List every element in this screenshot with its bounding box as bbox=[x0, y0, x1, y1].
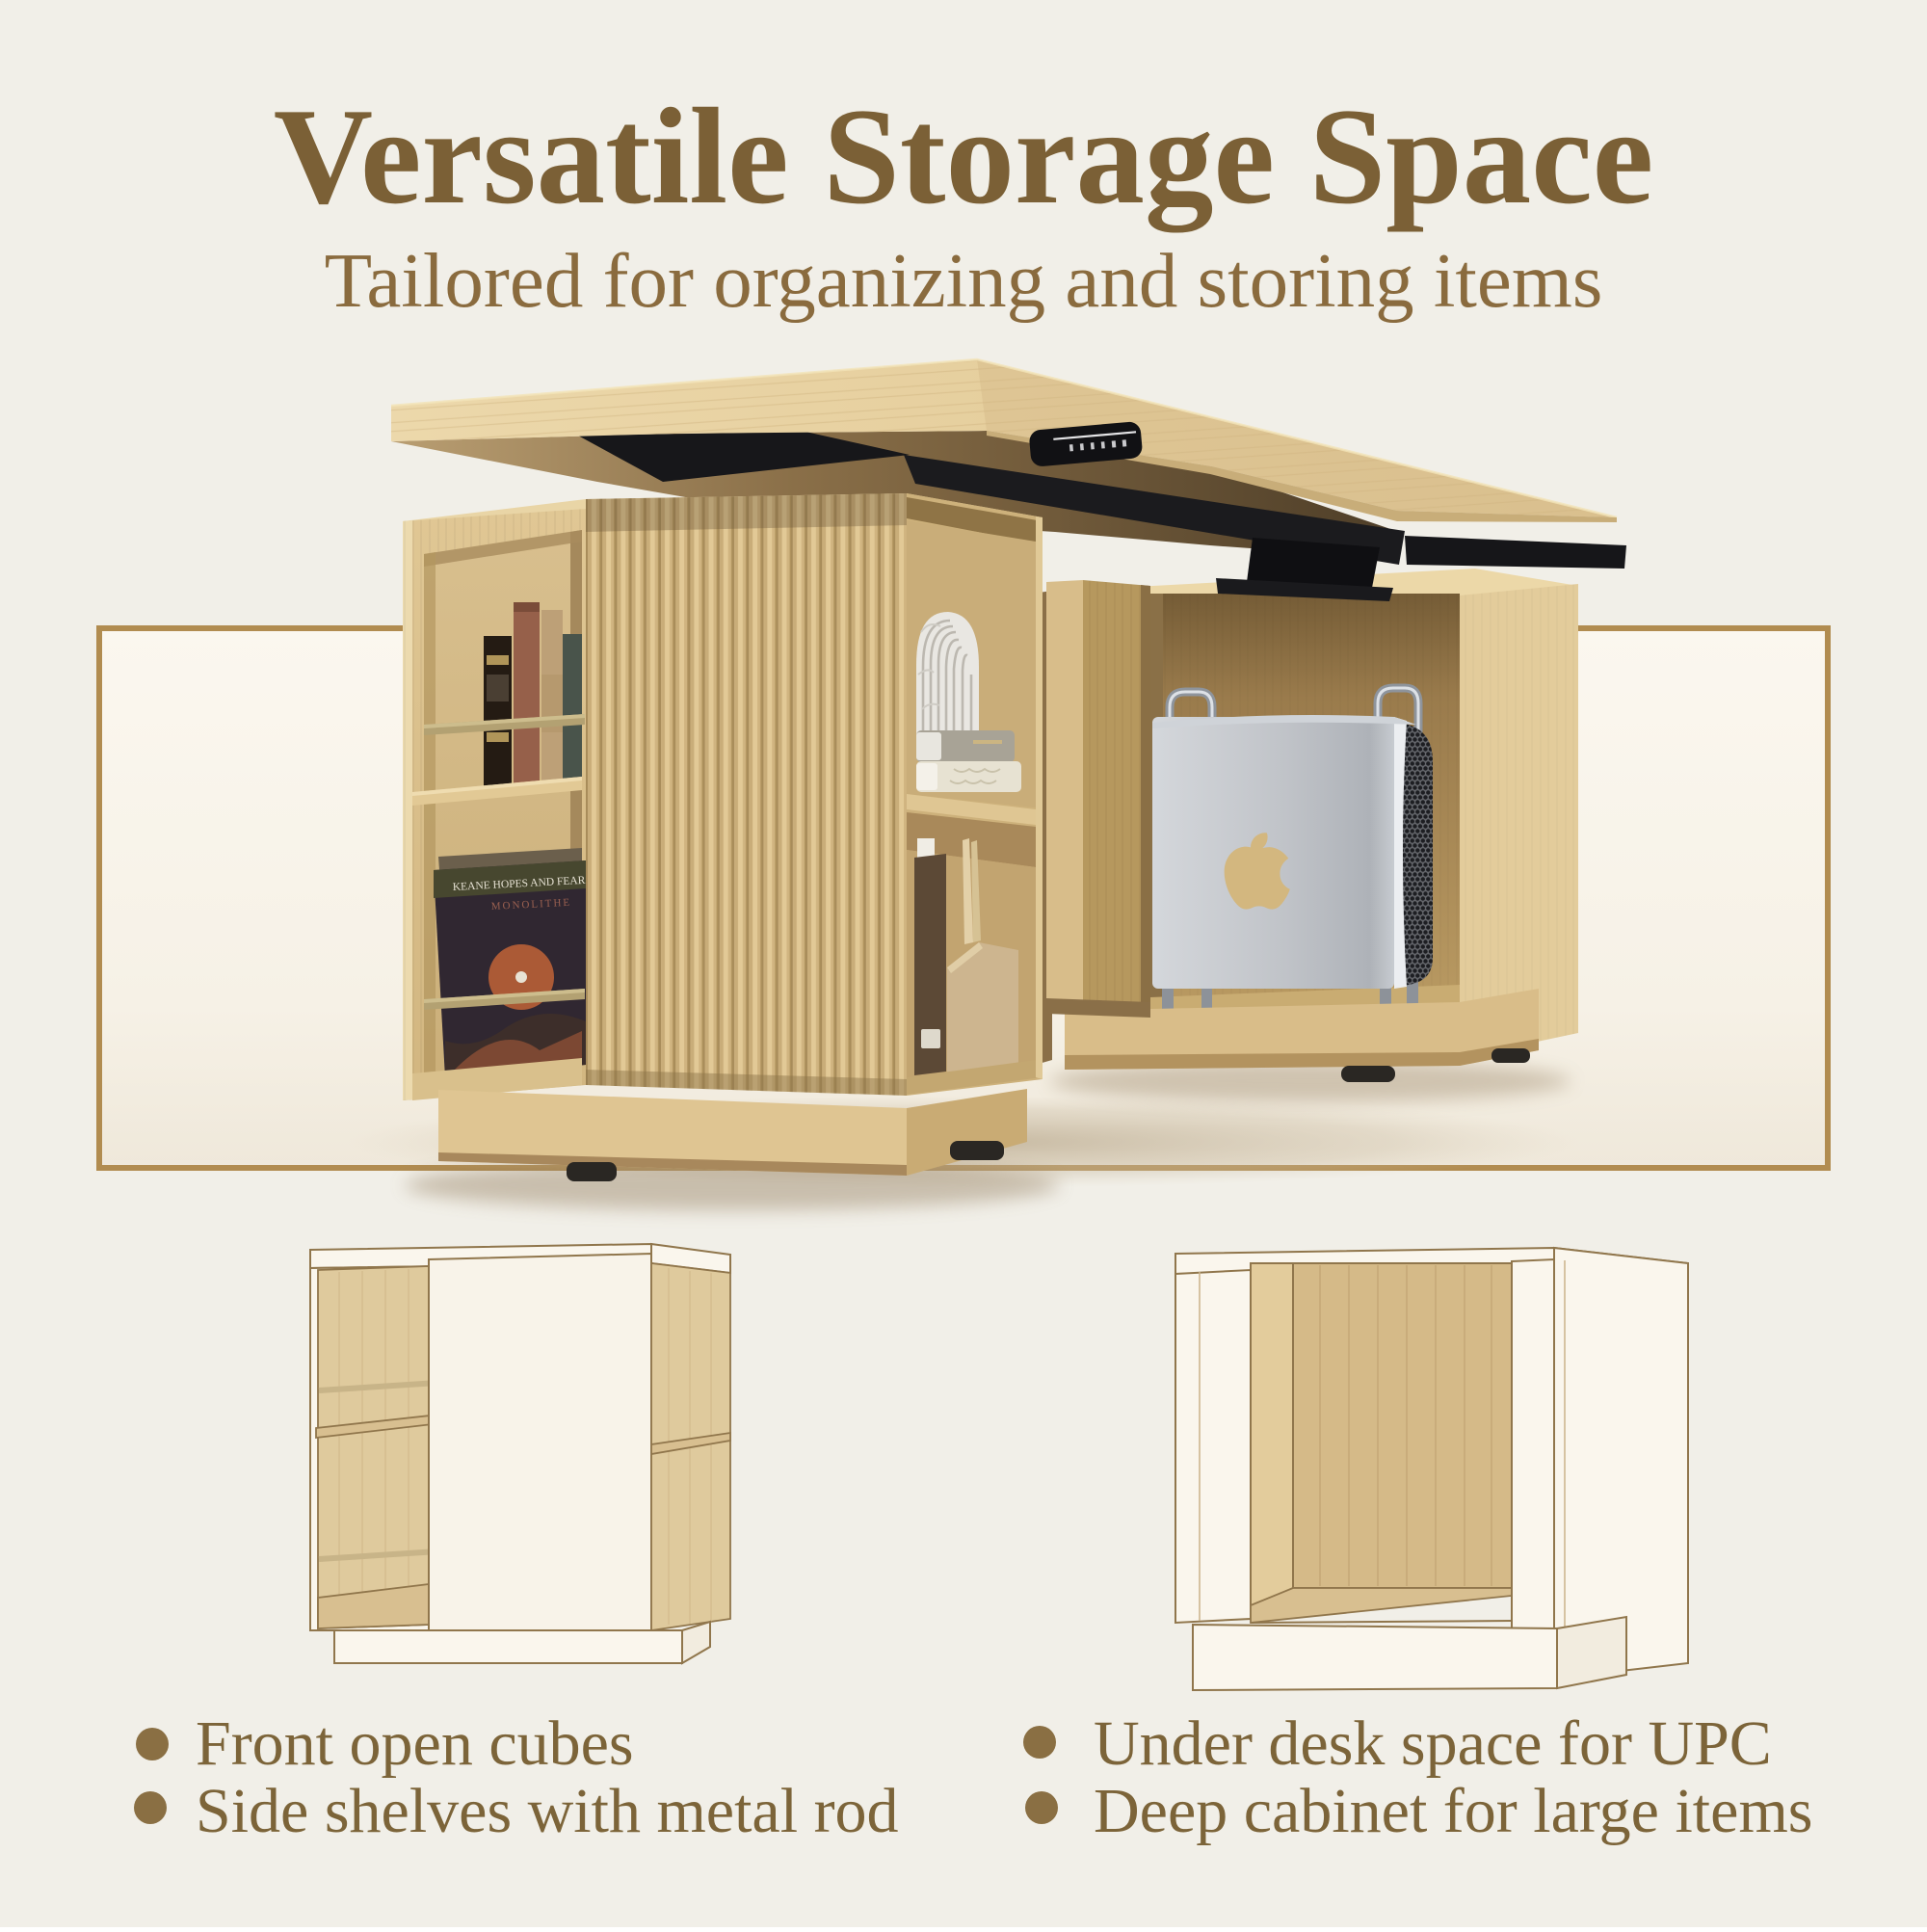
svg-text:Tailored for organizing and st: Tailored for organizing and storing item… bbox=[325, 237, 1603, 324]
svg-text:Versatile Storage Space: Versatile Storage Space bbox=[274, 80, 1653, 233]
svg-text:Front open cubes: Front open cubes bbox=[196, 1708, 634, 1779]
svg-text:Under desk space for UPC: Under desk space for UPC bbox=[1094, 1708, 1772, 1779]
svg-text:Side shelves with metal rod: Side shelves with metal rod bbox=[196, 1776, 899, 1846]
svg-text:Deep cabinet for large items: Deep cabinet for large items bbox=[1094, 1776, 1812, 1846]
